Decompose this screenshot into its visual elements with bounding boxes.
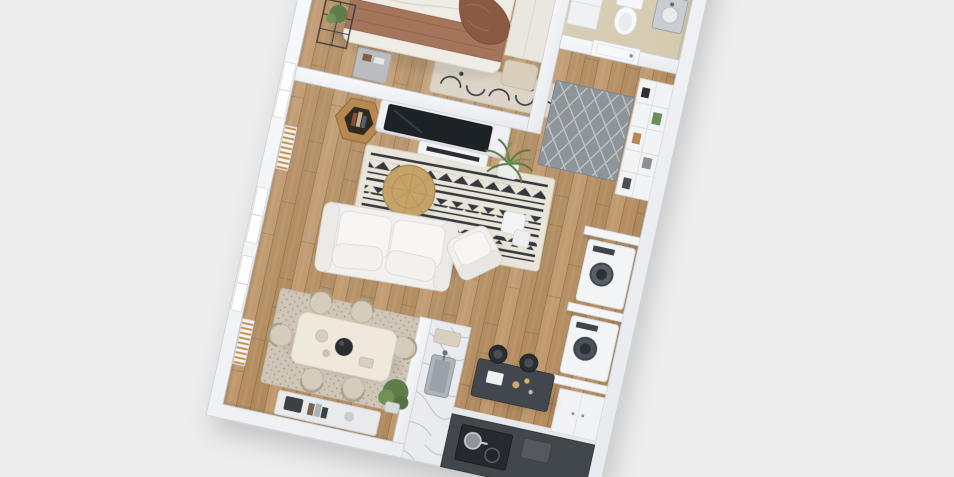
- floorplan-render-canvas: [0, 0, 954, 477]
- tall-cabinet: [551, 388, 605, 441]
- render-viewport: [0, 0, 954, 477]
- back-pillow: [331, 243, 383, 272]
